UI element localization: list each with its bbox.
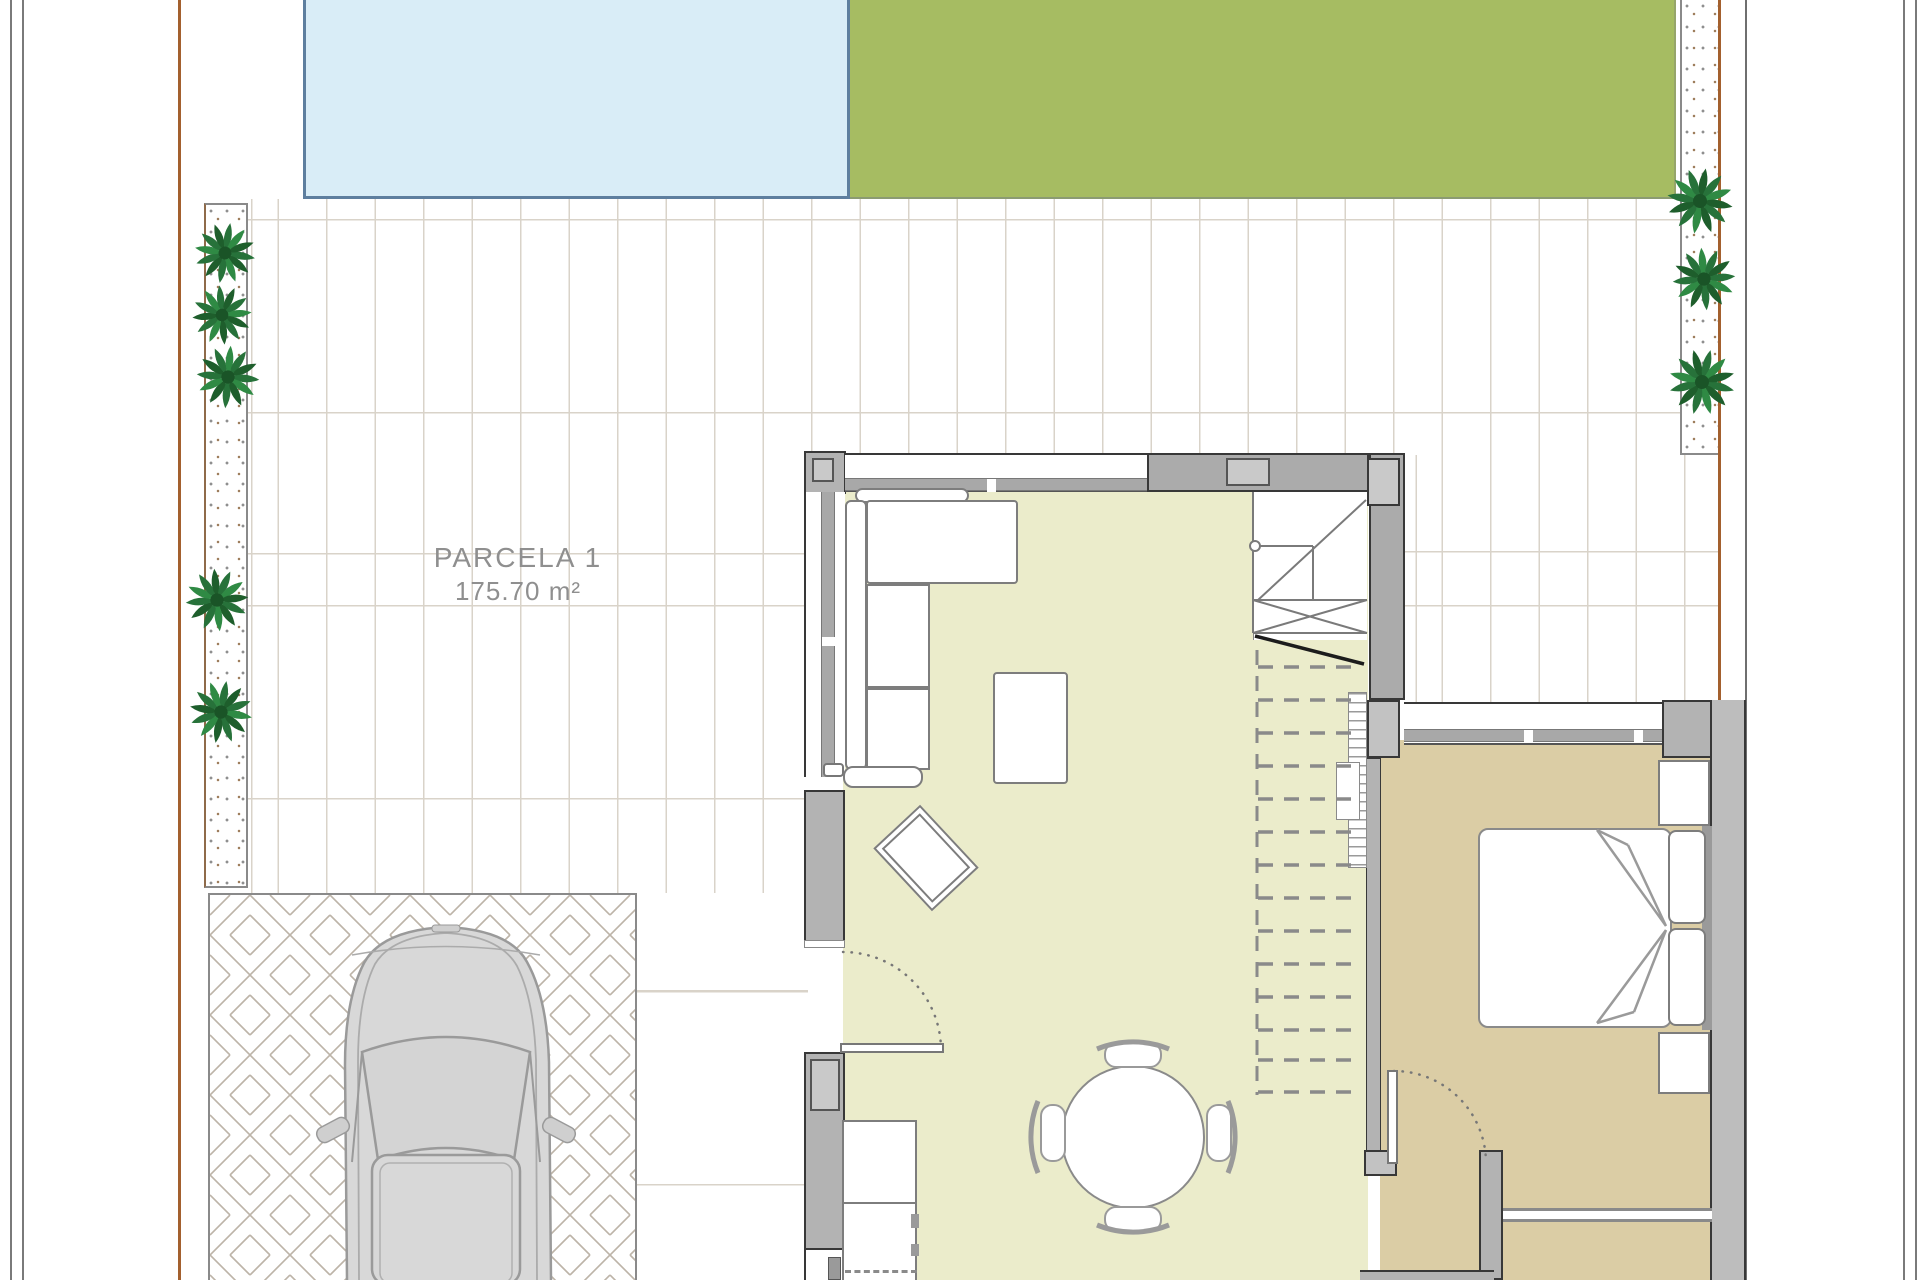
bottom-wall-strip <box>1360 1270 1494 1280</box>
mullion-tick <box>1524 730 1533 743</box>
left-planter-bed <box>204 203 248 888</box>
corner-block-topright <box>1367 458 1400 506</box>
left-window-band <box>804 492 845 777</box>
stairwell-area <box>1253 492 1367 640</box>
parcel-label: PARCELA 1 <box>398 542 638 574</box>
kitchen-counter <box>842 1120 917 1280</box>
mullion-tick <box>987 479 996 492</box>
pillar-detail <box>812 458 834 482</box>
page-border-line <box>1915 0 1917 1280</box>
terrace-paving-top <box>248 199 1681 455</box>
glazing <box>821 492 835 777</box>
driveway <box>208 893 637 1280</box>
sofa-back-left <box>845 500 867 770</box>
kitchen-appliance <box>810 1059 840 1111</box>
pillow <box>1668 928 1706 1026</box>
sofa-armrest <box>843 766 923 788</box>
top-wall-solid <box>1147 453 1369 492</box>
page-border-line <box>10 0 12 1280</box>
top-window-band <box>845 453 1147 492</box>
sofa-seat-main <box>866 500 1018 584</box>
bedroom-south-wall <box>1479 1150 1503 1280</box>
parcel-area: 175.70 m² <box>398 576 638 607</box>
garden-lawn <box>850 0 1676 199</box>
dining-chair-west <box>1040 1104 1066 1162</box>
entry-sill <box>804 940 845 948</box>
bedroom-window-band <box>1404 702 1662 745</box>
mullion-tick <box>1634 730 1643 743</box>
kitchen-tall-units <box>804 1052 845 1250</box>
counter-divider <box>844 1202 915 1204</box>
glazing <box>1404 729 1662 742</box>
terrace-paving-right <box>1402 455 1719 702</box>
bedroom-right-wall <box>1710 700 1746 1280</box>
herringbone-paving <box>210 895 635 1280</box>
living-bedroom-wall <box>1366 758 1381 1153</box>
stair-rail-box <box>1336 762 1360 820</box>
double-bed <box>1478 828 1672 1028</box>
pillow <box>1668 830 1706 924</box>
page-border-line <box>22 0 24 1280</box>
dining-chair-east <box>1206 1104 1232 1162</box>
nightstand <box>1658 760 1710 826</box>
corner-pillar-topleft <box>804 451 846 494</box>
page-border-line <box>1903 0 1905 1280</box>
property-boundary-right <box>1718 0 1721 706</box>
counter-knob <box>911 1244 919 1256</box>
right-planter-bed <box>1680 0 1720 455</box>
wall-junction-block <box>1367 700 1400 758</box>
dining-table <box>1061 1065 1205 1209</box>
sofa-seat-chaise <box>866 584 930 688</box>
left-wall-pier <box>804 790 845 942</box>
entrance-walkway <box>637 893 808 1280</box>
dining-chair-north <box>1104 1042 1162 1068</box>
kitchen-post <box>828 1257 841 1280</box>
wall-niche <box>1226 458 1270 486</box>
kitchen-recess <box>804 1250 845 1280</box>
floor-plan-sheet: PARCELA 1 175.70 m² <box>0 0 1920 1280</box>
glazing-end-cap <box>823 763 844 777</box>
counter-knob <box>911 1214 919 1228</box>
bedroom-door-frame <box>1364 1150 1397 1176</box>
sofa-seat-chaise <box>866 688 930 770</box>
mullion-tick <box>822 637 836 646</box>
terrace-paving-left <box>248 455 808 893</box>
nightstand <box>1658 1032 1710 1094</box>
property-boundary-left <box>178 0 181 1280</box>
dining-chair-south <box>1104 1206 1162 1232</box>
swimming-pool <box>303 0 850 199</box>
overhead-cabinet-dashed <box>845 1270 917 1278</box>
coffee-table <box>993 672 1068 784</box>
closet-partition <box>1503 1208 1712 1222</box>
